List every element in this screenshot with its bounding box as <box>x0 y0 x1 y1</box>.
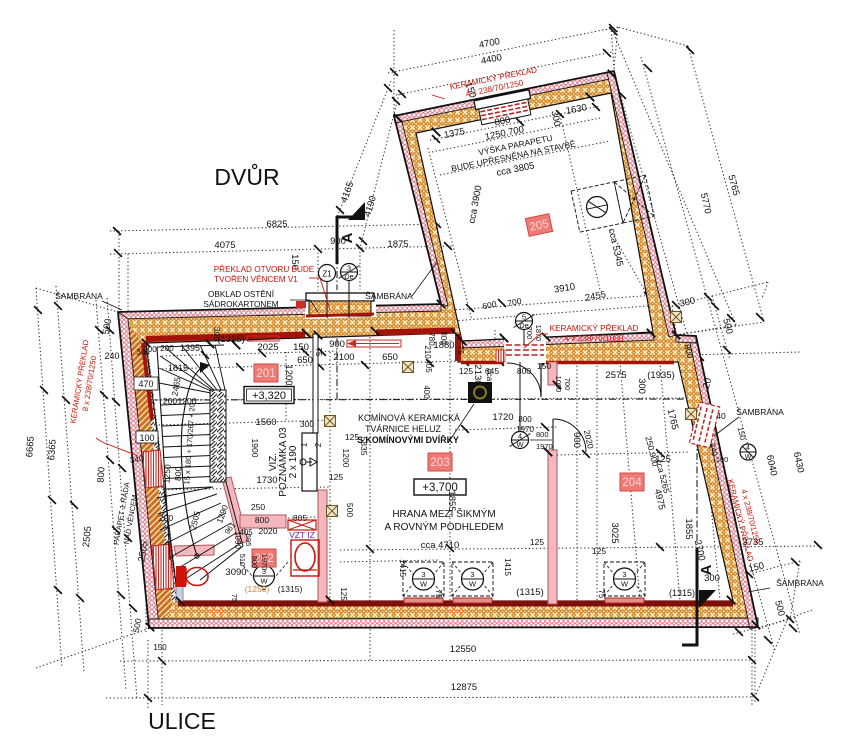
svg-text:470: 470 <box>138 379 153 389</box>
svg-text:125: 125 <box>329 472 343 482</box>
svg-text:125: 125 <box>530 537 544 547</box>
svg-text:cca 4710: cca 4710 <box>421 540 460 551</box>
svg-text:2 x 190: 2 x 190 <box>288 445 299 478</box>
svg-text:900: 900 <box>330 236 346 247</box>
svg-text:800: 800 <box>536 430 549 439</box>
svg-text:1970: 1970 <box>260 554 269 571</box>
svg-text:800: 800 <box>250 556 259 569</box>
svg-text:3: 3 <box>622 570 626 579</box>
svg-text:2575: 2575 <box>605 370 626 381</box>
svg-text:1855: 1855 <box>683 518 694 539</box>
svg-text:125: 125 <box>459 366 473 376</box>
svg-text:1200: 1200 <box>283 364 294 385</box>
svg-text:780: 780 <box>427 332 436 346</box>
svg-text:204: 204 <box>622 477 642 489</box>
svg-text:203: 203 <box>430 457 449 469</box>
svg-text:TVÁRNICE HELUZ: TVÁRNICE HELUZ <box>365 424 441 434</box>
svg-text:500: 500 <box>345 503 355 517</box>
svg-text:1415: 1415 <box>503 558 512 576</box>
svg-text:700: 700 <box>563 378 572 391</box>
svg-text:6825: 6825 <box>266 219 287 230</box>
svg-text:3090: 3090 <box>225 567 246 578</box>
svg-text:(1315): (1315) <box>278 584 303 594</box>
svg-text:A ROVNÝM PODHLEDEM: A ROVNÝM PODHLEDEM <box>385 520 504 533</box>
svg-text:W: W <box>469 580 477 589</box>
svg-text:300: 300 <box>636 378 647 394</box>
svg-text:(1315): (1315) <box>669 588 695 598</box>
svg-text:DVŮR: DVŮR <box>214 162 279 190</box>
svg-text:125: 125 <box>592 546 606 556</box>
svg-text:300: 300 <box>300 419 314 429</box>
svg-text:200: 200 <box>159 513 173 523</box>
svg-text:300: 300 <box>212 327 222 341</box>
svg-text:W: W <box>621 580 629 589</box>
svg-text:2: 2 <box>314 442 323 447</box>
svg-text:805: 805 <box>293 513 307 523</box>
svg-text:(1315): (1315) <box>516 587 543 598</box>
svg-text:ULICE: ULICE <box>148 708 216 734</box>
svg-text:100: 100 <box>139 433 154 443</box>
svg-text:2020: 2020 <box>259 526 278 536</box>
svg-text:4 x 238/70/1000: 4 x 238/70/1000 <box>565 334 624 343</box>
svg-text:KOMÍNOVÁ KERAMICKÁ: KOMÍNOVÁ KERAMICKÁ <box>358 413 460 423</box>
svg-text:4075: 4075 <box>214 240 235 251</box>
svg-text:75: 75 <box>456 346 465 355</box>
svg-text:6665: 6665 <box>24 436 36 458</box>
svg-text:HRANA MEZI ŠIKMÝM: HRANA MEZI ŠIKMÝM <box>392 507 495 520</box>
svg-text:900: 900 <box>571 432 582 448</box>
svg-text:1900: 1900 <box>250 439 260 458</box>
svg-text:800: 800 <box>518 415 532 424</box>
svg-text:800: 800 <box>173 466 184 481</box>
svg-text:SÁDROKARTONEM: SÁDROKARTONEM <box>203 299 278 309</box>
svg-text:650: 650 <box>297 355 313 366</box>
svg-text:800: 800 <box>255 515 269 525</box>
svg-text:201: 201 <box>256 368 275 380</box>
svg-text:800: 800 <box>439 331 448 345</box>
svg-text:TVOŘEN VĚNCEM V1: TVOŘEN VĚNCEM V1 <box>214 274 298 284</box>
svg-text:2025: 2025 <box>257 342 278 353</box>
svg-text:150: 150 <box>293 342 309 353</box>
svg-text:300: 300 <box>704 573 720 584</box>
svg-text:340: 340 <box>129 453 145 465</box>
svg-text:150: 150 <box>537 361 551 371</box>
svg-text:510: 510 <box>238 554 247 567</box>
svg-text:2130: 2130 <box>472 364 483 385</box>
svg-text:1415: 1415 <box>398 559 407 577</box>
svg-text:ŠAMBRÁNA: ŠAMBRÁNA <box>55 291 103 301</box>
svg-text:W: W <box>745 454 752 461</box>
svg-text:12550: 12550 <box>450 644 476 655</box>
svg-text:1615: 1615 <box>168 363 188 373</box>
svg-text:1090: 1090 <box>233 531 242 549</box>
svg-text:(1935): (1935) <box>647 370 674 381</box>
svg-text:125: 125 <box>339 587 348 601</box>
svg-text:75: 75 <box>314 348 323 357</box>
svg-text:2505: 2505 <box>81 526 94 548</box>
svg-text:3025: 3025 <box>609 522 620 543</box>
svg-text:200: 200 <box>163 396 177 406</box>
svg-text:900: 900 <box>329 339 345 350</box>
svg-text:1875: 1875 <box>387 239 408 250</box>
svg-text:75: 75 <box>230 594 239 602</box>
svg-text:300: 300 <box>143 345 157 354</box>
svg-text:S KOMÍNOVÝMI DVÍŘKY: S KOMÍNOVÝMI DVÍŘKY <box>357 434 459 445</box>
svg-text:4: 4 <box>746 445 750 452</box>
svg-text:PŘEKLAD OTVORU BUDE: PŘEKLAD OTVORU BUDE <box>214 264 315 274</box>
svg-text:3: 3 <box>470 570 474 579</box>
svg-text:1870: 1870 <box>534 325 543 342</box>
svg-text:12875: 12875 <box>451 682 477 693</box>
svg-text:650: 650 <box>382 352 398 363</box>
svg-text:W: W <box>420 580 428 589</box>
svg-text:ŠAMBRÁNA: ŠAMBRÁNA <box>365 291 413 301</box>
svg-text:210: 210 <box>423 345 432 359</box>
svg-text:240: 240 <box>104 351 119 361</box>
svg-text:40: 40 <box>716 411 726 421</box>
svg-text:KERAMICKÝ PŘEKLAD: KERAMICKÝ PŘEKLAD <box>550 323 639 333</box>
svg-text:3: 3 <box>421 570 425 579</box>
svg-text:75: 75 <box>434 590 443 599</box>
svg-text:+3,320: +3,320 <box>252 390 286 402</box>
svg-text:1395: 1395 <box>180 343 200 353</box>
svg-text:695: 695 <box>244 534 253 547</box>
svg-text:1560: 1560 <box>255 417 276 428</box>
svg-text:800: 800 <box>95 467 107 484</box>
svg-text:150: 150 <box>153 643 167 652</box>
svg-text:250: 250 <box>251 502 265 512</box>
svg-text:405: 405 <box>424 359 433 373</box>
svg-text:1250: 1250 <box>161 464 172 484</box>
svg-text:800: 800 <box>517 366 531 376</box>
svg-text:Z1: Z1 <box>322 270 332 279</box>
svg-text:2100: 2100 <box>333 352 354 363</box>
svg-text:De: De <box>344 272 354 281</box>
svg-text:400: 400 <box>422 385 431 399</box>
svg-text:1050: 1050 <box>554 376 563 393</box>
svg-text:1730: 1730 <box>256 475 277 486</box>
svg-text:190: 190 <box>716 455 729 464</box>
svg-text:(1250): (1250) <box>245 584 270 594</box>
svg-text:6365: 6365 <box>46 439 58 461</box>
svg-text:1970: 1970 <box>516 425 534 434</box>
svg-text:OBKLAD OSTĚNÍ: OBKLAD OSTĚNÍ <box>208 289 275 299</box>
svg-text:1720: 1720 <box>492 412 513 423</box>
svg-text:125: 125 <box>655 454 671 465</box>
svg-text:1: 1 <box>300 442 309 447</box>
svg-text:700: 700 <box>525 327 534 340</box>
svg-text:645: 645 <box>485 366 499 376</box>
svg-text:ŠAMBRÁNA: ŠAMBRÁNA <box>776 578 824 588</box>
svg-text:VZT IZ: VZT IZ <box>289 530 315 540</box>
svg-text:200: 200 <box>160 344 174 353</box>
svg-text:75: 75 <box>597 590 606 599</box>
svg-text:1200: 1200 <box>341 449 351 468</box>
svg-text:ŠAMBRÁNA: ŠAMBRÁNA <box>736 407 784 417</box>
